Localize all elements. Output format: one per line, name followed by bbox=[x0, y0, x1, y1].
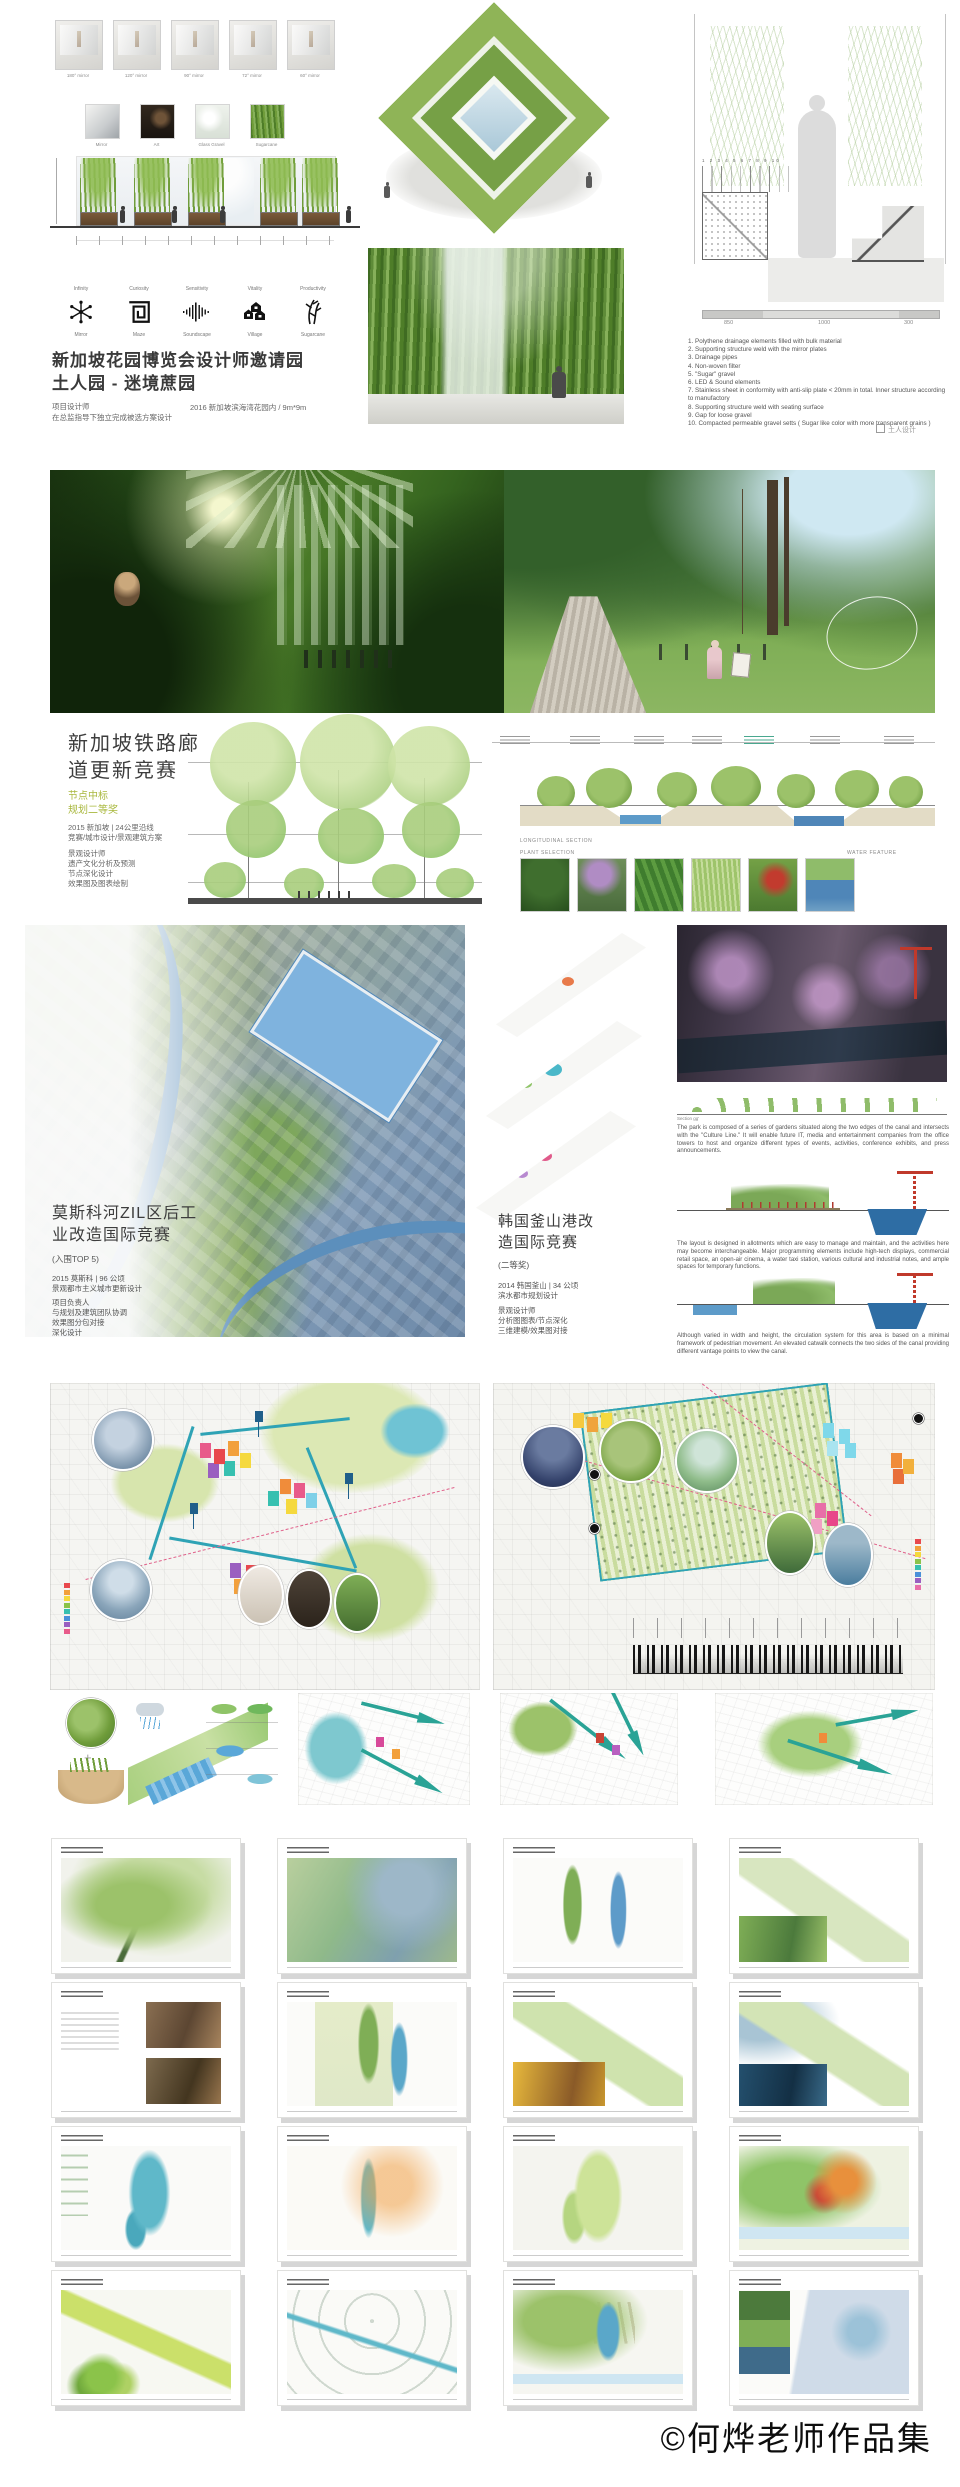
water-feature-photo bbox=[805, 858, 855, 912]
building-cluster-cyan bbox=[823, 1423, 834, 1438]
page-thumbnail bbox=[739, 2002, 909, 2106]
concept-bottom-label: Maze bbox=[114, 332, 164, 338]
mirror-study-row: 180° mirror 120° mirror 90° mirror 72° m… bbox=[55, 20, 333, 78]
project1-title-line1: 新加坡花园博览会设计师邀请园 bbox=[52, 349, 304, 372]
mirror-study-caption: 90° mirror bbox=[171, 73, 217, 78]
project4-meta: 2014 韩国釜山 | 34 公顷 滨水都市规划设计 bbox=[498, 1281, 578, 1301]
project4-title: 韩国釜山港改 造国际竞赛 bbox=[498, 1211, 594, 1253]
portfolio-page bbox=[277, 1838, 467, 1974]
mirror-study-photo bbox=[229, 20, 277, 70]
timeline-station bbox=[500, 734, 530, 744]
project2-award-line1: 节点中标 bbox=[68, 790, 118, 804]
building-cluster-orange bbox=[891, 1453, 902, 1468]
person-silhouette bbox=[172, 210, 177, 223]
concept-bottom-label: Sugarcane bbox=[288, 332, 338, 338]
construction-notes: 1. Polythene drainage elements filled wi… bbox=[688, 338, 946, 428]
building-cluster bbox=[280, 1479, 291, 1494]
pond bbox=[380, 1403, 450, 1459]
shrub bbox=[204, 862, 246, 898]
page-title-block bbox=[287, 2134, 329, 2141]
concept-vitality: Vitality Village bbox=[230, 286, 280, 338]
photo-inset-circle bbox=[90, 1559, 152, 1621]
sugarcane-garden-photo bbox=[368, 248, 624, 424]
page-footer-line bbox=[739, 2255, 909, 2256]
tree-trunk bbox=[767, 480, 778, 636]
timeline-station bbox=[810, 734, 840, 744]
page-thumbnail bbox=[513, 2002, 683, 2106]
project3-meta: 2015 莫斯科 | 96 公顷 景观都市主义城市更新设计 bbox=[52, 1274, 142, 1294]
ground-fill bbox=[768, 258, 944, 302]
red-crane bbox=[913, 1273, 916, 1303]
page-title-block bbox=[287, 1846, 329, 1853]
project4-role-line1: 景观设计师 bbox=[498, 1306, 568, 1316]
section-terrain bbox=[520, 806, 935, 826]
page-footer-line bbox=[61, 2399, 231, 2400]
understory-tree bbox=[402, 802, 460, 858]
building-cluster-pink bbox=[815, 1503, 826, 1518]
note-8: 8. Supporting structure weld with seatin… bbox=[688, 404, 946, 412]
concept-top-label: Vitality bbox=[230, 286, 280, 292]
painter-figure bbox=[707, 647, 722, 679]
plan-accent bbox=[544, 1063, 562, 1076]
page-thumbnail bbox=[61, 1858, 231, 1962]
planter-box bbox=[80, 212, 118, 226]
shrub bbox=[372, 864, 416, 898]
canal-night-render bbox=[677, 925, 947, 1082]
page-footer-line bbox=[513, 1967, 683, 1968]
project3-title: 莫斯科河ZIL区后工 业改造国际竞赛 bbox=[52, 1203, 197, 1247]
page-thumbnail bbox=[513, 2146, 683, 2250]
mirror-study: 90° mirror bbox=[171, 20, 217, 78]
flag-marker bbox=[345, 1473, 353, 1484]
section-tree bbox=[835, 770, 879, 808]
page-title-block bbox=[61, 2278, 103, 2285]
longitudinal-section-render bbox=[520, 758, 935, 832]
page-thumbnail bbox=[61, 2290, 231, 2394]
page-title-block bbox=[287, 2278, 329, 2285]
tree-strata-elevation bbox=[188, 722, 482, 910]
dim-850: 850 bbox=[724, 320, 733, 326]
human-figure-scale bbox=[798, 110, 836, 258]
project3-role-line2: 与规划及建筑团队协调 bbox=[52, 1308, 127, 1318]
village-icon bbox=[230, 294, 280, 330]
page-footer-line bbox=[287, 1967, 457, 1968]
planting-basket-sketch bbox=[58, 1770, 124, 1804]
garden-floor bbox=[368, 394, 624, 424]
green-towers bbox=[277, 485, 404, 645]
concept-bottom-label: Soundscape bbox=[172, 332, 222, 338]
page-thumbnail bbox=[739, 2290, 909, 2394]
page-title-block bbox=[739, 2278, 781, 2285]
concept-productivity: Productivity Sugarcane bbox=[288, 286, 338, 338]
accent-block bbox=[612, 1745, 620, 1755]
people-marks bbox=[742, 1202, 840, 1208]
canal-water-wedge bbox=[867, 1303, 927, 1329]
person-silhouette bbox=[586, 176, 592, 188]
dimension-ticks bbox=[76, 236, 334, 245]
street-section-strip bbox=[677, 1090, 947, 1115]
sugarcane-clump bbox=[260, 158, 296, 214]
tree-canopy bbox=[300, 714, 396, 810]
page-title-block bbox=[61, 2134, 103, 2141]
material-caption: Sugarcane bbox=[250, 142, 283, 147]
portfolio-page bbox=[51, 1838, 241, 1974]
plant-photo-row bbox=[520, 858, 855, 912]
mirror-study: 60° mirror bbox=[287, 20, 333, 78]
page-footer-line bbox=[739, 2399, 909, 2400]
concept-bottom-label: Village bbox=[230, 332, 280, 338]
person-silhouette bbox=[346, 210, 351, 223]
aerial-inset-circle bbox=[66, 1698, 116, 1748]
pool bbox=[693, 1305, 737, 1315]
mirror-study-caption: 180° mirror bbox=[55, 73, 101, 78]
page-title-block bbox=[513, 1990, 555, 1997]
person-silhouette bbox=[120, 210, 125, 223]
photo-inset-oval bbox=[334, 1573, 380, 1633]
portfolio-page bbox=[729, 1838, 919, 1974]
sugarcane-clump bbox=[134, 158, 170, 214]
construction-section-detail: 1 2 3 4 5 6 7 8 9 10 850 1000 300 bbox=[688, 10, 950, 332]
boardwalk bbox=[530, 596, 646, 713]
page-footer-line bbox=[287, 2111, 457, 2112]
planter-detail bbox=[702, 192, 768, 260]
project3-meta-line2: 景观都市主义城市更新设计 bbox=[52, 1284, 142, 1294]
project2-title: 新加坡铁路廊 道更新竞赛 bbox=[68, 731, 200, 785]
page-footer-line bbox=[513, 2399, 683, 2400]
lake bbox=[304, 1711, 368, 1785]
portfolio-page bbox=[503, 1838, 693, 1974]
canal-paragraph-1: The park is composed of a series of gard… bbox=[677, 1125, 949, 1156]
flag-marker bbox=[255, 1411, 263, 1422]
page-footer-line bbox=[513, 2111, 683, 2112]
project1-title-line2: 土人园 - 迷境蔗园 bbox=[52, 372, 304, 395]
project2-role-line2: 遗产文化分析及预测 bbox=[68, 859, 136, 869]
understory-tree bbox=[226, 800, 286, 858]
building-cluster bbox=[230, 1563, 241, 1578]
page-footer-line bbox=[61, 1967, 231, 1968]
concept-top-label: Curiosity bbox=[114, 286, 164, 292]
copyright-watermark: ©何烨老师作品集 bbox=[661, 2412, 932, 2460]
portfolio-page bbox=[729, 1982, 919, 2118]
page-footer-line bbox=[61, 2255, 231, 2256]
tree-canopy bbox=[210, 722, 296, 806]
material-photo-art bbox=[140, 104, 175, 139]
page-title-block bbox=[513, 1846, 555, 1853]
canal-paragraph-2: The layout is designed in allotments whi… bbox=[677, 1241, 949, 1272]
timeline-station bbox=[570, 734, 600, 744]
sugarcane-clump bbox=[80, 158, 116, 214]
photo-inset-circle bbox=[92, 1409, 154, 1471]
canal-water bbox=[677, 1021, 947, 1074]
planter-box bbox=[134, 212, 172, 226]
project2-meta: 2015 新加坡 | 24公里沿线 竞赛/城市设计/景观建筑方案 bbox=[68, 823, 162, 843]
section-tree bbox=[586, 768, 632, 808]
photo-inset-oval bbox=[238, 1565, 284, 1625]
strategy-plan-1 bbox=[298, 1693, 470, 1805]
plan-accent bbox=[538, 1151, 552, 1161]
portfolio-page bbox=[503, 1982, 693, 2118]
concept-curiosity: Curiosity Maze bbox=[114, 286, 164, 338]
ground-strip bbox=[188, 898, 482, 904]
project4-award: (二等奖) bbox=[498, 1259, 529, 1271]
accent-block bbox=[596, 1733, 604, 1743]
red-crane bbox=[913, 1171, 916, 1209]
plant-photo bbox=[634, 858, 684, 912]
wire-sculpture bbox=[818, 587, 925, 679]
plant-photo bbox=[691, 858, 741, 912]
page-thumbnail bbox=[287, 1858, 457, 1962]
project2-meta-line2: 竞赛/城市设计/景观建筑方案 bbox=[68, 833, 162, 843]
project2-role-line3: 节点深化设计 bbox=[68, 869, 136, 879]
section-tree bbox=[657, 772, 697, 808]
note-5: 5. "Sugar" gravel bbox=[688, 371, 946, 379]
water-feature-label: WATER FEATURE bbox=[847, 850, 897, 856]
masterplan-map-right bbox=[493, 1383, 935, 1690]
project1-title: 新加坡花园博览会设计师邀请园 土人园 - 迷境蔗园 bbox=[52, 349, 304, 395]
canal-paragraph-3: Although varied in width and height, the… bbox=[677, 1333, 949, 1356]
accent-block bbox=[376, 1737, 384, 1747]
person-silhouette bbox=[220, 210, 225, 223]
tree-canopy bbox=[388, 726, 470, 806]
mirror-icon bbox=[56, 294, 106, 330]
page-footer-line bbox=[739, 1967, 909, 1968]
planter-box bbox=[302, 212, 340, 226]
photo-inset-oval bbox=[823, 1523, 873, 1587]
easel bbox=[731, 652, 751, 678]
turenscape-logo: 土人设计 bbox=[876, 424, 916, 435]
page-title-block bbox=[61, 1990, 103, 1997]
mirror-study-photo bbox=[113, 20, 161, 70]
project1-credits: 项目设计师 在总监指导下独立完成被选方案设计 bbox=[52, 402, 172, 423]
material: Art bbox=[140, 104, 173, 147]
portfolio-page bbox=[51, 2126, 241, 2262]
page-title-block bbox=[739, 2134, 781, 2141]
metro-station-icon bbox=[589, 1523, 600, 1534]
page-title-block bbox=[61, 1846, 103, 1853]
metro-station-icon bbox=[913, 1413, 924, 1424]
page-thumbnail bbox=[287, 2146, 457, 2250]
map-legend bbox=[915, 1539, 921, 1591]
material-row: Mirror Art Glass Gravel Sugarcane bbox=[85, 104, 305, 147]
plan-accent bbox=[520, 1079, 532, 1088]
rail-corridor-panel: LONGITUDINAL SECTION PLANT SELECTION WAT… bbox=[492, 726, 935, 910]
soundscape-icon bbox=[172, 294, 222, 330]
project3-meta-line1: 2015 莫斯科 | 96 公顷 bbox=[52, 1274, 142, 1284]
page-thumbnail bbox=[287, 2002, 457, 2106]
project1-role-desc: 在总监指导下独立完成被选方案设计 bbox=[52, 413, 172, 424]
dim-1000: 1000 bbox=[818, 320, 830, 326]
callout-numbers: 1 2 3 4 5 6 7 8 9 10 bbox=[702, 158, 781, 163]
canal-section-render-2 bbox=[677, 1273, 949, 1329]
material-photo-mirror bbox=[85, 104, 120, 139]
page-thumbnail bbox=[513, 1858, 683, 1962]
project3-role-line4: 深化设计 bbox=[52, 1328, 127, 1338]
note-6: 6. LED & Sound elements bbox=[688, 379, 946, 387]
project2-role-line1: 景观设计师 bbox=[68, 849, 136, 859]
material-caption: Mirror bbox=[85, 142, 118, 147]
material: Mirror bbox=[85, 104, 118, 147]
callout-leaders bbox=[702, 166, 798, 192]
portfolio-page bbox=[51, 1982, 241, 2118]
project3-title-line2: 业改造国际竞赛 bbox=[52, 1225, 197, 1247]
mirror-study-caption: 60° mirror bbox=[287, 73, 333, 78]
note-2: 2. Supporting structure weld with the mi… bbox=[688, 346, 946, 354]
photo-inset-circle bbox=[599, 1419, 663, 1483]
plant-photo bbox=[748, 858, 798, 912]
harbor-basin bbox=[250, 950, 443, 1123]
page-footer-line bbox=[61, 2111, 231, 2112]
project3-role-line3: 效果图分包对接 bbox=[52, 1318, 127, 1328]
portfolio-page bbox=[277, 2126, 467, 2262]
walking-people bbox=[304, 650, 394, 668]
jungle-render-photo bbox=[50, 470, 504, 713]
section-trees bbox=[687, 1098, 937, 1112]
project4-role-line2: 分析图图表/节点深化 bbox=[498, 1316, 568, 1326]
photo-inset-circle bbox=[521, 1425, 585, 1489]
portfolio-canvas: 180° mirror 120° mirror 90° mirror 72° m… bbox=[0, 0, 960, 2487]
project2-award-line2: 规划二等奖 bbox=[68, 804, 118, 818]
note-4: 4. Non-woven filter bbox=[688, 363, 946, 371]
mirror-study-photo bbox=[55, 20, 103, 70]
mirror-study-photo bbox=[287, 20, 335, 70]
page-title-block bbox=[513, 2134, 555, 2141]
flag-marker bbox=[190, 1503, 198, 1514]
strategy-plan-3 bbox=[715, 1693, 933, 1805]
project2-title-line1: 新加坡铁路廊 bbox=[68, 731, 200, 758]
plant-selection-label: PLANT SELECTION bbox=[520, 850, 575, 856]
section-label: Section gg' bbox=[677, 1116, 699, 1121]
page-thumbnail bbox=[287, 2290, 457, 2394]
red-crane bbox=[914, 947, 917, 999]
timeline-station-active bbox=[744, 734, 774, 744]
building-cluster bbox=[200, 1443, 211, 1458]
strategy-plan-2 bbox=[500, 1693, 678, 1805]
portfolio-page bbox=[503, 2270, 693, 2406]
plan-accent bbox=[516, 1169, 528, 1178]
green-network bbox=[755, 1709, 865, 1779]
portfolio-page bbox=[729, 2270, 919, 2406]
portfolio-page bbox=[503, 2126, 693, 2262]
sugarcane-clump bbox=[302, 158, 338, 214]
project3-roles: 项目负责人 与规划及建筑团队协调 效果图分包对接 深化设计 bbox=[52, 1298, 127, 1338]
page-thumbnail bbox=[739, 2146, 909, 2250]
accent-block bbox=[819, 1733, 827, 1743]
material-photo-glass-gravel bbox=[195, 104, 230, 139]
elevation-height-dim bbox=[56, 158, 57, 224]
photo-inset-circle bbox=[675, 1429, 739, 1493]
concept-infinity: Infinity Mirror bbox=[56, 286, 106, 338]
page-title-block bbox=[739, 1990, 781, 1997]
project4-title-line2: 造国际竞赛 bbox=[498, 1232, 594, 1253]
page-footer-line bbox=[513, 2255, 683, 2256]
green-area bbox=[508, 1701, 578, 1757]
mirror-study-photo bbox=[171, 20, 219, 70]
people-silhouette-strip bbox=[633, 1645, 903, 1674]
plant-photo bbox=[577, 858, 627, 912]
busan-site-plan bbox=[486, 1021, 642, 1129]
canal-section-render-1 bbox=[677, 1157, 949, 1235]
timeline-station bbox=[634, 734, 664, 744]
planted-mound bbox=[753, 1278, 835, 1304]
concept-bottom-label: Mirror bbox=[56, 332, 106, 338]
rain-cloud-icon bbox=[136, 1703, 164, 1716]
plan-accent bbox=[534, 967, 548, 977]
page-thumbnail bbox=[61, 2146, 231, 2250]
note-7: 7. Stainless sheet in conformity with an… bbox=[688, 387, 946, 403]
station-ticks bbox=[633, 1618, 903, 1638]
concept-sensitivity: Sensitivity Soundscape bbox=[172, 286, 222, 338]
busan-canal-panel: Section gg' The park is composed of a se… bbox=[665, 925, 955, 1355]
page-thumbnail bbox=[739, 1858, 909, 1962]
metro-station-icon bbox=[589, 1469, 600, 1480]
portfolio-page bbox=[51, 2270, 241, 2406]
material: Sugarcane bbox=[250, 104, 283, 147]
page-footer-line bbox=[287, 2255, 457, 2256]
maze-axonometric-render bbox=[368, 14, 620, 242]
page-title-block bbox=[287, 1990, 329, 1997]
project2-role-line4: 效果图及图表绘制 bbox=[68, 879, 136, 889]
page-title-block bbox=[739, 1846, 781, 1853]
project4-role-line3: 三维建模/效果图对接 bbox=[498, 1326, 568, 1336]
planter-box bbox=[260, 212, 298, 226]
mirror-study: 180° mirror bbox=[55, 20, 101, 78]
page-thumbnail bbox=[513, 2290, 683, 2394]
dimension-bar bbox=[702, 310, 940, 319]
portfolio-page bbox=[277, 1982, 467, 2118]
shrub bbox=[436, 868, 474, 898]
photo-inset-oval bbox=[765, 1511, 815, 1575]
section-tree bbox=[537, 776, 575, 810]
mirror-study-caption: 72° mirror bbox=[229, 73, 275, 78]
ground-line bbox=[50, 226, 360, 228]
plan-accent bbox=[562, 977, 574, 986]
project2-meta-line1: 2015 新加坡 | 24公里沿线 bbox=[68, 823, 162, 833]
section-tree bbox=[711, 766, 761, 808]
project2-roles: 景观设计师 遗产文化分析及预测 节点深化设计 效果图及图表绘制 bbox=[68, 849, 136, 889]
concept-top-label: Infinity bbox=[56, 286, 106, 292]
dim-300: 300 bbox=[904, 320, 913, 326]
note-3: 3. Drainage pipes bbox=[688, 354, 946, 362]
material-caption: Art bbox=[140, 142, 173, 147]
material: Glass Gravel bbox=[195, 104, 228, 147]
portfolio-page bbox=[277, 2270, 467, 2406]
material-photo-sugarcane bbox=[250, 104, 285, 139]
photo-inset-oval bbox=[286, 1569, 332, 1629]
project1-meta: 2016 新加坡滨海湾花园内 / 9m*9m bbox=[190, 402, 306, 413]
busan-site-plan bbox=[496, 933, 646, 1037]
note-9: 9. Gap for loose gravel bbox=[688, 412, 946, 420]
project4-roles: 景观设计师 分析图图表/节点深化 三维建模/效果图对接 bbox=[498, 1306, 568, 1336]
map-legend bbox=[64, 1583, 70, 1635]
sugarcane-sketch bbox=[848, 26, 922, 186]
busan-site-plan bbox=[476, 1111, 636, 1221]
portfolio-page bbox=[729, 2126, 919, 2262]
park-render-photo bbox=[504, 470, 935, 713]
concept-top-label: Productivity bbox=[288, 286, 338, 292]
rain-dashes bbox=[140, 1717, 160, 1729]
garden-elevation-drawing bbox=[50, 152, 360, 256]
concept-top-label: Sensitivity bbox=[172, 286, 222, 292]
person-silhouette bbox=[384, 186, 390, 198]
understory-tree bbox=[318, 808, 384, 864]
mirror-study: 72° mirror bbox=[229, 20, 275, 78]
masterplan-map-left bbox=[50, 1383, 480, 1690]
concept-icon-row: Infinity Mirror Curiosity Maze Sensitivi… bbox=[56, 286, 338, 338]
project3-title-line1: 莫斯科河ZIL区后工 bbox=[52, 1203, 197, 1225]
note-1: 1. Polythene drainage elements filled wi… bbox=[688, 338, 946, 346]
project4-title-line1: 韩国釜山港改 bbox=[498, 1211, 594, 1232]
pond-typology-diagrams bbox=[206, 1699, 278, 1795]
